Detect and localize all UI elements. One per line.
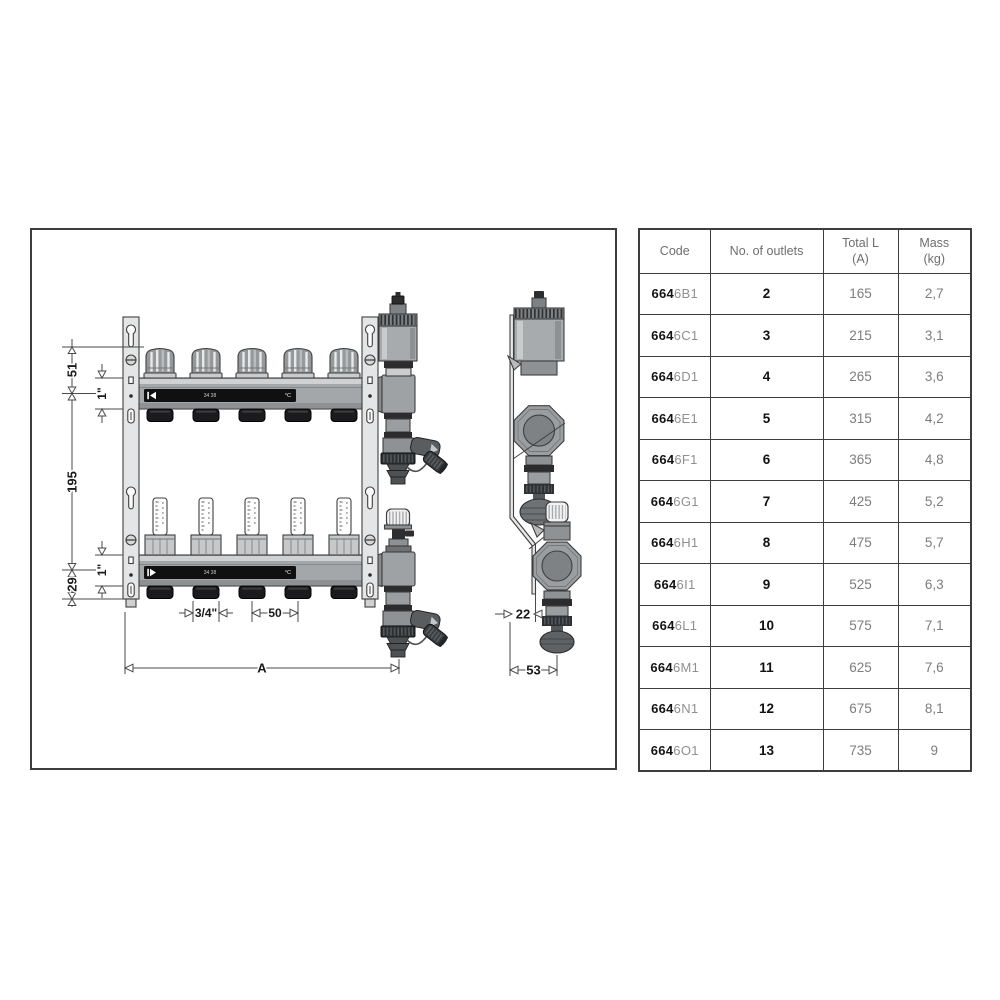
code-prefix: 664 — [651, 535, 674, 550]
total-l-cell: 215 — [823, 315, 898, 357]
outlets-cell: 8 — [710, 522, 823, 564]
valve-cap — [328, 349, 360, 379]
mass-cell: 6,3 — [898, 564, 971, 606]
valve-cap — [236, 349, 268, 379]
outlets-cell: 6 — [710, 439, 823, 481]
page: 34 38 °C — [0, 0, 1000, 1000]
table-row: 6646I1 9 525 6,3 — [639, 564, 971, 606]
valve-cap — [190, 349, 222, 379]
manifold-drawing: 34 38 °C — [32, 230, 615, 768]
mass-cell: 4,8 — [898, 439, 971, 481]
total-l-cell: 525 — [823, 564, 898, 606]
mass-cell: 3,6 — [898, 356, 971, 398]
drain-valve — [381, 586, 448, 657]
temp-unit-text: °C — [285, 570, 291, 576]
total-l-cell: 265 — [823, 356, 898, 398]
total-l-cell: 675 — [823, 688, 898, 730]
code-suffix: 6O1 — [673, 743, 698, 758]
dim-50: 50 — [268, 606, 282, 620]
table-row: 6646H1 8 475 5,7 — [639, 522, 971, 564]
table-row: 6646E1 5 315 4,2 — [639, 398, 971, 440]
mounting-bracket-right — [362, 317, 378, 607]
total-l-cell: 475 — [823, 522, 898, 564]
mounting-bracket-left — [123, 317, 139, 607]
code-prefix: 664 — [654, 577, 677, 592]
mass-cell: 7,6 — [898, 647, 971, 689]
code-prefix: 664 — [651, 411, 674, 426]
outlet-nuts-bottom — [147, 586, 357, 599]
code-prefix: 664 — [651, 743, 674, 758]
outlets-cell: 10 — [710, 605, 823, 647]
code-cell: 6646C1 — [639, 315, 710, 357]
dim-34in: 3/4" — [195, 606, 217, 620]
code-cell: 6646F1 — [639, 439, 710, 481]
outlets-cell: 11 — [710, 647, 823, 689]
total-l-cell: 315 — [823, 398, 898, 440]
total-l-cell: 165 — [823, 273, 898, 315]
outlets-cell: 2 — [710, 273, 823, 315]
mass-cell: 9 — [898, 730, 971, 772]
flow-meter — [237, 498, 267, 555]
table-row: 6646G1 7 425 5,2 — [639, 481, 971, 523]
side-view: 22 53 — [495, 291, 581, 678]
dim-22: 22 — [516, 607, 530, 622]
total-l-cell: 575 — [823, 605, 898, 647]
code-suffix: 6M1 — [673, 660, 699, 675]
code-prefix: 664 — [652, 452, 675, 467]
code-prefix: 664 — [651, 286, 674, 301]
temp-label-top: 34 38 °C — [144, 389, 296, 402]
dim-53: 53 — [526, 663, 540, 678]
code-suffix: 6G1 — [673, 494, 698, 509]
outlets-cell: 9 — [710, 564, 823, 606]
dim-1in-top: 1" — [95, 387, 109, 399]
table-row: 6646B1 2 165 2,7 — [639, 273, 971, 315]
table-row: 6646O1 13 735 9 — [639, 730, 971, 772]
outlets-cell: 3 — [710, 315, 823, 357]
code-prefix: 664 — [651, 328, 674, 343]
table-row: 6646D1 4 265 3,6 — [639, 356, 971, 398]
code-cell: 6646L1 — [639, 605, 710, 647]
total-l-cell: 735 — [823, 730, 898, 772]
code-prefix: 664 — [651, 494, 674, 509]
mass-cell: 4,2 — [898, 398, 971, 440]
mass-cell: 7,1 — [898, 605, 971, 647]
outlets-cell: 12 — [710, 688, 823, 730]
code-suffix: 6D1 — [674, 369, 699, 384]
front-view: 34 38 °C — [62, 292, 448, 676]
mass-cell: 2,7 — [898, 273, 971, 315]
code-suffix: 6F1 — [674, 452, 697, 467]
code-cell: 6646M1 — [639, 647, 710, 689]
temp-label-bottom: 34 38 °C — [144, 566, 296, 579]
dim-A: A — [257, 661, 267, 676]
code-cell: 6646D1 — [639, 356, 710, 398]
code-cell: 6646O1 — [639, 730, 710, 772]
drain-valve — [381, 413, 448, 484]
mass-cell: 5,2 — [898, 481, 971, 523]
code-cell: 6646I1 — [639, 564, 710, 606]
code-suffix: 6I1 — [677, 577, 696, 592]
table-row: 6646C1 3 215 3,1 — [639, 315, 971, 357]
code-cell: 6646H1 — [639, 522, 710, 564]
code-suffix: 6H1 — [674, 535, 699, 550]
table-row: 6646M1 11 625 7,6 — [639, 647, 971, 689]
flow-meter — [329, 498, 359, 555]
outlets-cell: 7 — [710, 481, 823, 523]
code-cell: 6646E1 — [639, 398, 710, 440]
outlets-cell: 13 — [710, 730, 823, 772]
dim-29: 29 — [65, 577, 80, 591]
table-row: 6646N1 12 675 8,1 — [639, 688, 971, 730]
total-l-cell: 365 — [823, 439, 898, 481]
spec-table-header: Code No. of outlets Total L (A) Mass (kg… — [639, 229, 971, 273]
temp-scale-text: 34 38 — [204, 570, 217, 576]
code-cell: 6646G1 — [639, 481, 710, 523]
outlets-cell: 5 — [710, 398, 823, 440]
side-top-valve — [508, 291, 565, 525]
code-prefix: 664 — [650, 660, 673, 675]
temp-unit-text: °C — [285, 393, 291, 399]
total-l-cell: 625 — [823, 647, 898, 689]
code-suffix: 6L1 — [675, 618, 698, 633]
outlets-cell: 4 — [710, 356, 823, 398]
dim-1in-bottom: 1" — [95, 564, 109, 576]
dim-195: 195 — [65, 471, 80, 493]
header-total-l: Total L (A) — [823, 229, 898, 273]
header-mass: Mass (kg) — [898, 229, 971, 273]
code-prefix: 664 — [651, 369, 674, 384]
header-code: Code — [639, 229, 710, 273]
flow-meter — [191, 498, 221, 555]
table-row: 6646F1 6 365 4,8 — [639, 439, 971, 481]
mass-cell: 3,1 — [898, 315, 971, 357]
code-suffix: 6B1 — [674, 286, 698, 301]
mass-cell: 5,7 — [898, 522, 971, 564]
mass-cell: 8,1 — [898, 688, 971, 730]
dim-51: 51 — [65, 363, 80, 377]
flow-meter — [145, 498, 175, 555]
valve-cap — [144, 349, 176, 379]
spec-table: Code No. of outlets Total L (A) Mass (kg… — [638, 228, 972, 772]
code-prefix: 664 — [651, 701, 674, 716]
code-suffix: 6E1 — [674, 411, 698, 426]
code-prefix: 664 — [652, 618, 675, 633]
code-cell: 6646B1 — [639, 273, 710, 315]
flow-meters — [145, 498, 359, 555]
temp-scale-text: 34 38 — [204, 393, 217, 399]
technical-drawing: 34 38 °C — [30, 228, 617, 770]
total-l-cell: 425 — [823, 481, 898, 523]
code-suffix: 6C1 — [674, 328, 699, 343]
header-outlets: No. of outlets — [710, 229, 823, 273]
spec-table-body: 6646B1 2 165 2,7 6646C1 3 215 3,1 6646D1… — [639, 273, 971, 771]
flow-meter — [283, 498, 313, 555]
valve-caps — [144, 349, 360, 379]
table-row: 6646L1 10 575 7,1 — [639, 605, 971, 647]
outlet-nuts-top — [147, 409, 357, 422]
code-cell: 6646N1 — [639, 688, 710, 730]
valve-cap — [282, 349, 314, 379]
code-suffix: 6N1 — [674, 701, 699, 716]
